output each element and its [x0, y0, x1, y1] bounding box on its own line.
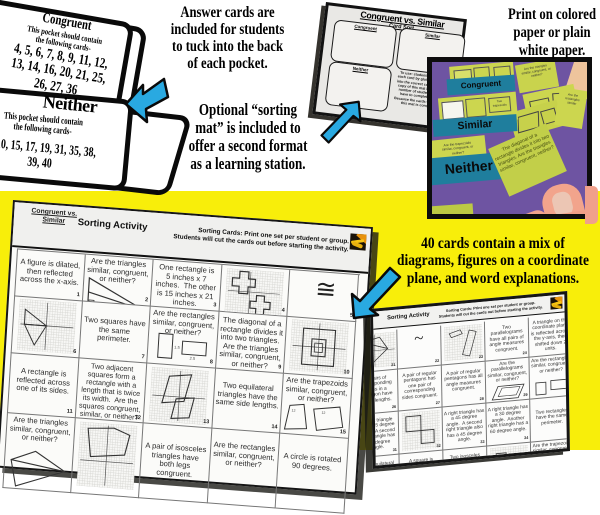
svg-text:12: 12: [291, 408, 295, 412]
svg-text:12: 12: [321, 411, 325, 415]
svg-text:2.5: 2.5: [189, 356, 196, 361]
svg-text:1.5: 1.5: [174, 344, 181, 349]
